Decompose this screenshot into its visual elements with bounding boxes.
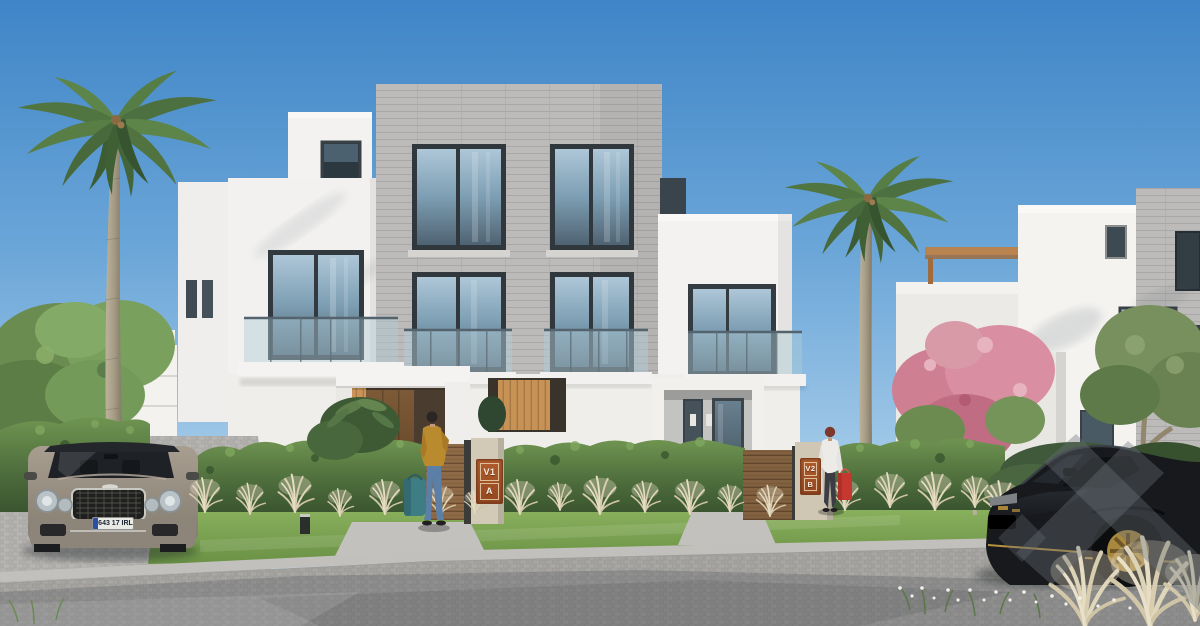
gate-a-sign-line2: A [480,483,499,501]
wall-sconce [690,414,696,426]
head [825,427,835,437]
teal-duffel-bag [404,475,426,516]
wall-sconce [706,414,712,426]
side-mirror [24,472,37,480]
slat-wall-recess [478,378,566,432]
license-plate: 643 17 IRL [92,517,134,530]
gate-b-sign-line1: V2 [804,462,817,476]
scene-canvas [0,0,1200,626]
side-mirror [186,472,199,480]
window [202,280,213,318]
window [186,280,197,318]
gate-a-sign: V1 A [476,459,503,504]
license-plate-number: 643 17 IRL [98,518,133,529]
window [1106,226,1126,258]
villa-render-image: V1 A V2 B 643 17 IRL [0,0,1200,626]
head [427,412,438,423]
gate-a-sign-line1: V1 [480,463,499,481]
red-shopping-bag [838,469,852,500]
window [1176,232,1200,290]
mesh-grille [72,489,145,520]
luxury-sedan [22,442,199,561]
gate-b-sign-line2: B [804,478,817,492]
gate-b-sign: V2 B [800,458,821,495]
window [660,178,686,216]
